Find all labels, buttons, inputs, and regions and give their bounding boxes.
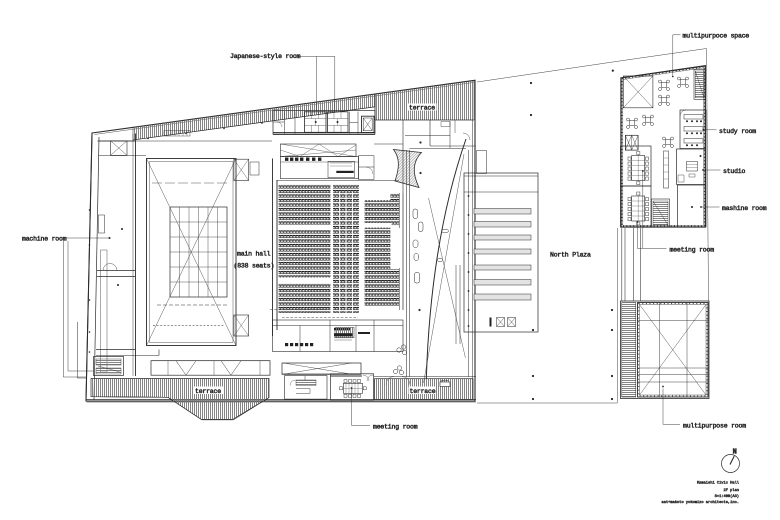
svg-text:Japanese-style room: Japanese-style room: [230, 53, 301, 60]
svg-text:(838 seats): (838 seats): [234, 263, 275, 270]
svg-text:main hall: main hall: [237, 251, 271, 258]
svg-text:terrace: terrace: [409, 105, 435, 112]
svg-text:aat+makoto yokomizo architects: aat+makoto yokomizo architects,inc.: [662, 500, 739, 505]
svg-text:North Plaza: North Plaza: [550, 252, 591, 259]
svg-text:machine room: machine room: [22, 235, 67, 242]
svg-text:studio: studio: [723, 168, 746, 175]
svg-text:Kamaishi Civic Hall: Kamaishi Civic Hall: [697, 481, 740, 486]
svg-text:terrace: terrace: [410, 388, 436, 395]
svg-text:multipurpoce space: multipurpoce space: [683, 32, 750, 39]
svg-text:study room: study room: [719, 128, 756, 135]
svg-text:terrace: terrace: [195, 388, 221, 395]
svg-text:meeting room: meeting room: [670, 246, 715, 253]
svg-text:multipurpose room: multipurpose room: [683, 422, 746, 429]
svg-text:S=1:400(A3): S=1:400(A3): [715, 494, 739, 499]
svg-text:mashine room: mashine room: [722, 205, 767, 212]
svg-text:meeting room: meeting room: [373, 423, 418, 430]
svg-text:2F plan: 2F plan: [724, 488, 740, 493]
